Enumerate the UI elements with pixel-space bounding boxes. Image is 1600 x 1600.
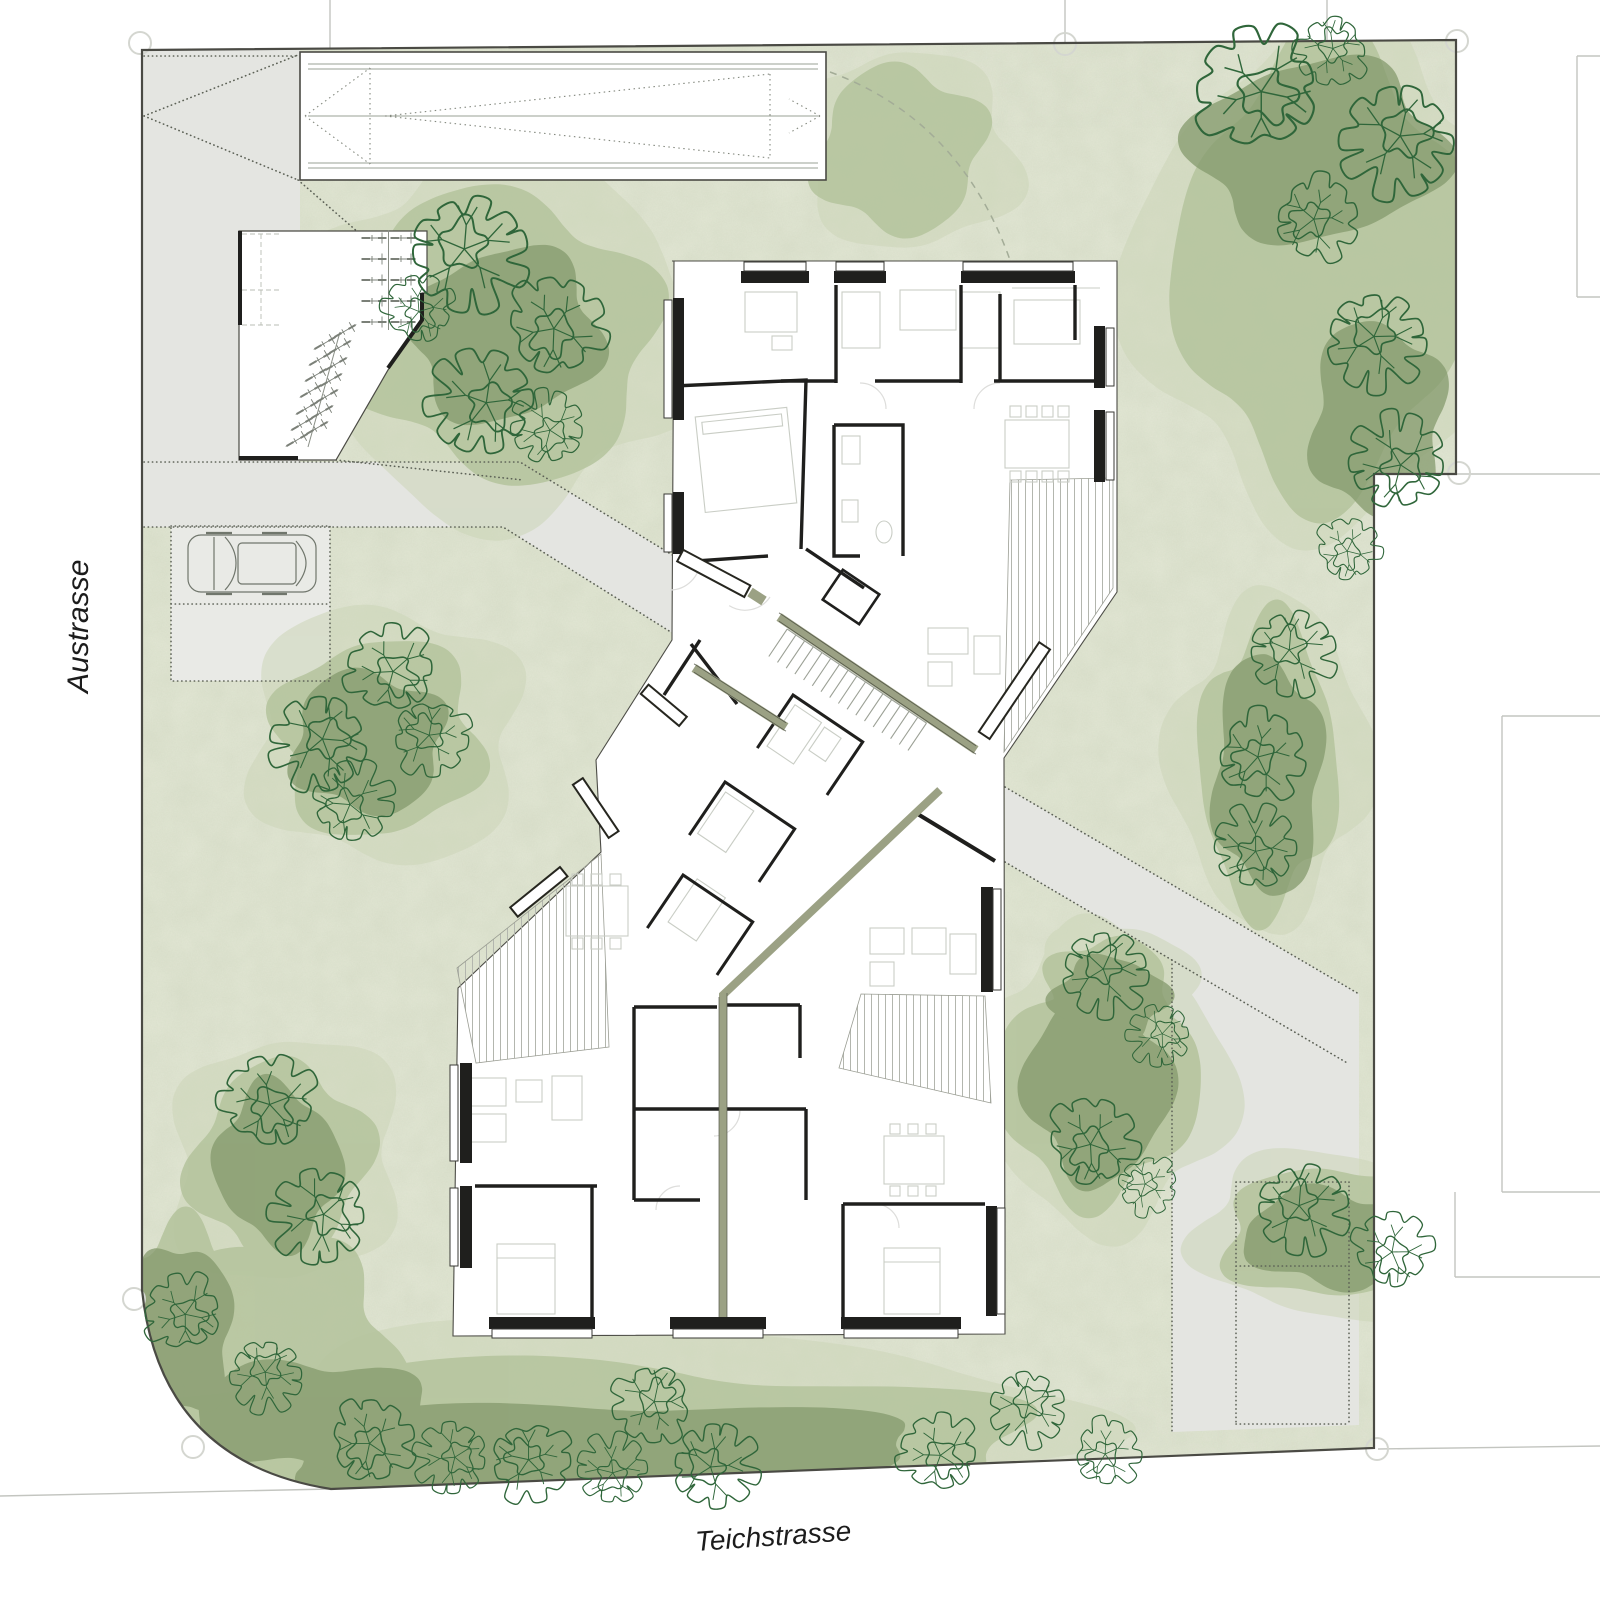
svg-text:Austrasse: Austrasse (62, 560, 95, 695)
svg-text:Teichstrasse: Teichstrasse (694, 1515, 852, 1557)
